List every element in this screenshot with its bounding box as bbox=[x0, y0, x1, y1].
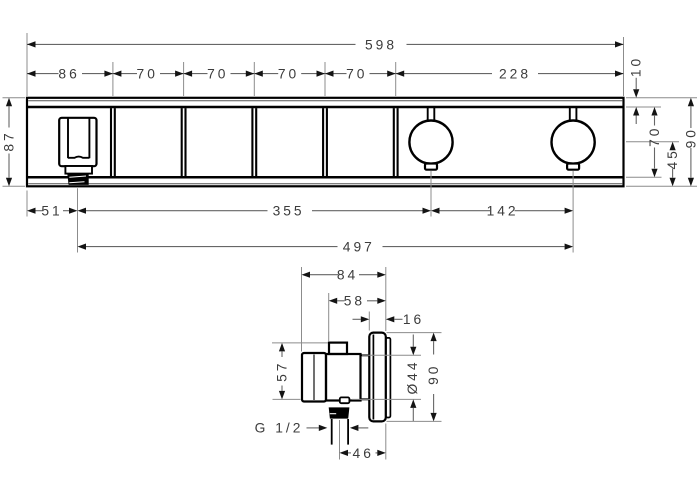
svg-text:90: 90 bbox=[426, 364, 441, 385]
svg-text:84: 84 bbox=[337, 268, 358, 283]
svg-text:90: 90 bbox=[683, 127, 698, 148]
svg-text:16: 16 bbox=[403, 312, 424, 327]
svg-text:70: 70 bbox=[278, 67, 299, 82]
svg-text:70: 70 bbox=[207, 67, 228, 82]
svg-text:Ø44: Ø44 bbox=[405, 359, 420, 394]
svg-text:497: 497 bbox=[343, 240, 375, 255]
svg-text:57: 57 bbox=[275, 361, 290, 382]
svg-text:45: 45 bbox=[665, 148, 680, 169]
svg-text:86: 86 bbox=[58, 67, 79, 82]
svg-text:355: 355 bbox=[273, 204, 305, 219]
svg-text:598: 598 bbox=[365, 38, 397, 53]
svg-text:G 1/2: G 1/2 bbox=[255, 420, 304, 435]
svg-text:228: 228 bbox=[499, 67, 531, 82]
svg-text:87: 87 bbox=[2, 130, 17, 151]
svg-text:46: 46 bbox=[353, 446, 374, 461]
svg-text:58: 58 bbox=[344, 294, 365, 309]
svg-text:10: 10 bbox=[629, 56, 644, 77]
svg-text:70: 70 bbox=[647, 126, 662, 147]
svg-text:70: 70 bbox=[137, 67, 158, 82]
svg-text:70: 70 bbox=[346, 67, 367, 82]
svg-text:51: 51 bbox=[41, 204, 62, 219]
svg-text:142: 142 bbox=[487, 204, 519, 219]
